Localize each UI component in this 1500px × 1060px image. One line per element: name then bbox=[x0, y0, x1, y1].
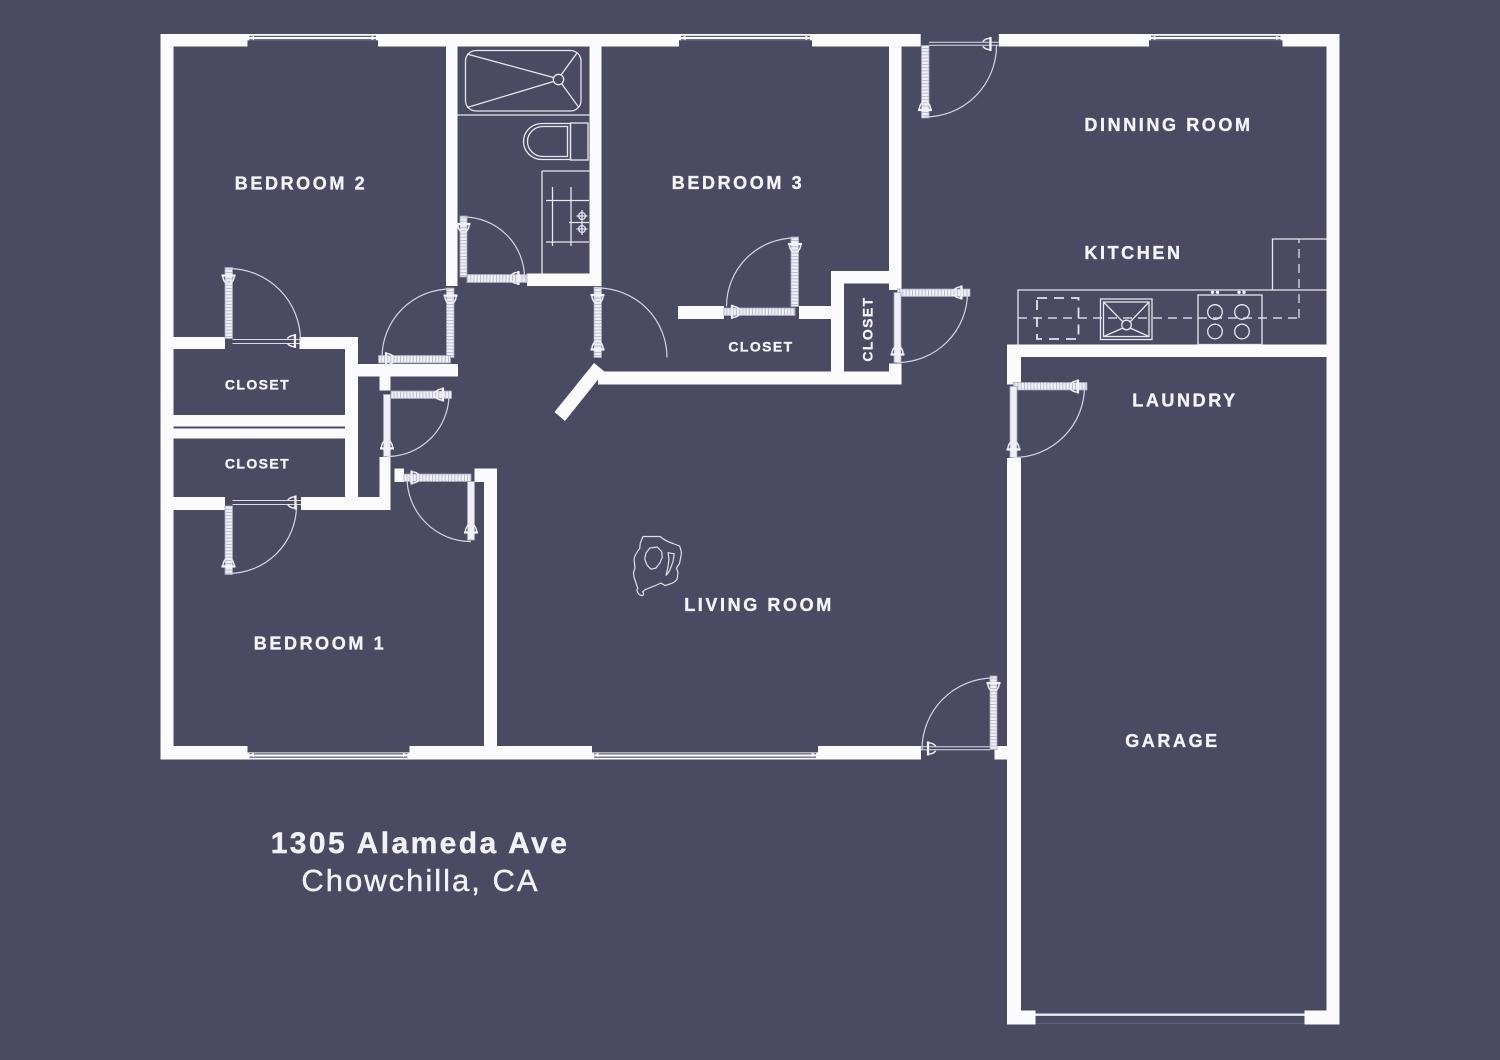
svg-text:CLOSET: CLOSET bbox=[728, 339, 793, 355]
svg-text:CLOSET: CLOSET bbox=[225, 456, 290, 472]
svg-text:BEDROOM 2: BEDROOM 2 bbox=[235, 174, 367, 194]
svg-text:1305 Alameda Ave: 1305 Alameda Ave bbox=[271, 827, 570, 860]
svg-text:KITCHEN: KITCHEN bbox=[1084, 243, 1182, 263]
svg-text:LAUNDRY: LAUNDRY bbox=[1132, 391, 1238, 411]
svg-text:BEDROOM 1: BEDROOM 1 bbox=[254, 634, 386, 654]
svg-text:BEDROOM 3: BEDROOM 3 bbox=[672, 173, 804, 193]
svg-text:CLOSET: CLOSET bbox=[225, 377, 290, 393]
svg-text:CLOSET: CLOSET bbox=[860, 296, 876, 361]
svg-text:GARAGE: GARAGE bbox=[1125, 731, 1220, 751]
svg-text:Chowchilla, CA: Chowchilla, CA bbox=[301, 863, 539, 898]
svg-text:LIVING ROOM: LIVING ROOM bbox=[684, 595, 834, 615]
svg-text:DINNING ROOM: DINNING ROOM bbox=[1084, 115, 1252, 135]
